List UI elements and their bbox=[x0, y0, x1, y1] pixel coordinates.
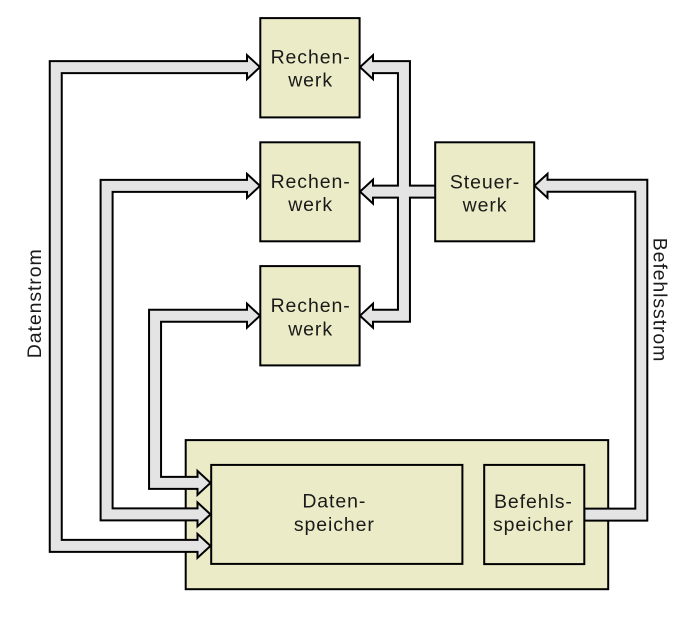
svg-text:werk: werk bbox=[287, 318, 333, 340]
svg-text:Befehlsstrom: Befehlsstrom bbox=[649, 238, 671, 363]
svg-text:Daten-: Daten- bbox=[302, 491, 366, 513]
svg-text:werk: werk bbox=[287, 194, 333, 216]
svg-text:werk: werk bbox=[287, 70, 333, 92]
svg-text:Datenstrom: Datenstrom bbox=[24, 248, 46, 358]
svg-text:Befehls-: Befehls- bbox=[494, 491, 573, 513]
svg-text:Rechen-: Rechen- bbox=[271, 295, 351, 317]
svg-text:Steuer-: Steuer- bbox=[450, 172, 520, 194]
svg-text:werk: werk bbox=[462, 195, 508, 217]
svg-text:speicher: speicher bbox=[294, 514, 375, 536]
svg-text:Rechen-: Rechen- bbox=[271, 171, 351, 193]
svg-text:speicher: speicher bbox=[493, 514, 574, 536]
svg-text:Rechen-: Rechen- bbox=[271, 47, 351, 69]
